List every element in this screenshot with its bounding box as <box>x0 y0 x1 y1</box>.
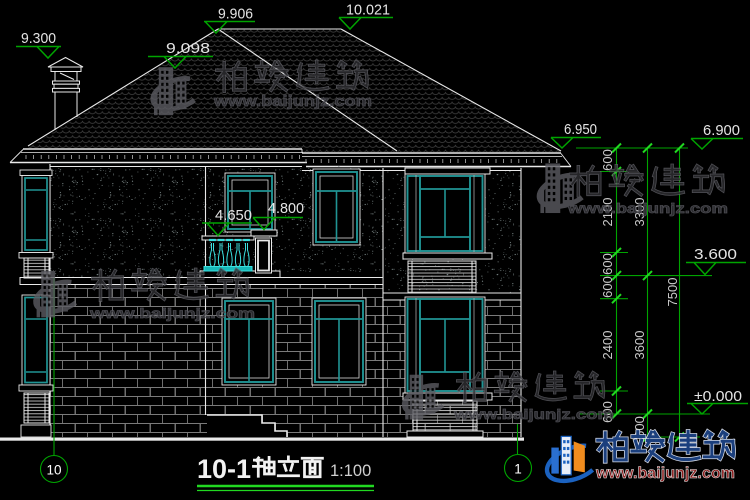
svg-text:www.baijunjz.com: www.baijunjz.com <box>567 201 728 216</box>
svg-text:www.baijunjz.com: www.baijunjz.com <box>453 407 614 422</box>
svg-text:9.098: 9.098 <box>166 40 210 57</box>
svg-text:2400: 2400 <box>600 331 615 360</box>
svg-text:1:100: 1:100 <box>330 462 371 480</box>
svg-text:600: 600 <box>600 253 615 275</box>
svg-text:10-1: 10-1 <box>197 454 251 484</box>
svg-text:6.950: 6.950 <box>564 121 597 138</box>
svg-text:600: 600 <box>600 276 615 298</box>
svg-text:10.021: 10.021 <box>346 2 390 19</box>
svg-text:1: 1 <box>514 462 522 477</box>
svg-text:600: 600 <box>600 149 615 171</box>
svg-text:±0.000: ±0.000 <box>694 388 742 405</box>
svg-text:4.650: 4.650 <box>215 207 252 224</box>
svg-text:9.906: 9.906 <box>218 6 253 23</box>
svg-text:3.600: 3.600 <box>694 246 737 263</box>
svg-text:4.800: 4.800 <box>268 200 304 217</box>
svg-text:3600: 3600 <box>632 331 647 360</box>
svg-text:6.900: 6.900 <box>703 122 740 139</box>
svg-text:www.baijunjz.com: www.baijunjz.com <box>89 305 255 321</box>
svg-text:7500: 7500 <box>665 278 680 307</box>
svg-text:10: 10 <box>46 463 61 478</box>
svg-text:www.baijunjz.com: www.baijunjz.com <box>595 465 735 482</box>
svg-text:9.300: 9.300 <box>21 30 56 47</box>
svg-text:www.baijunjz.com: www.baijunjz.com <box>213 94 372 110</box>
